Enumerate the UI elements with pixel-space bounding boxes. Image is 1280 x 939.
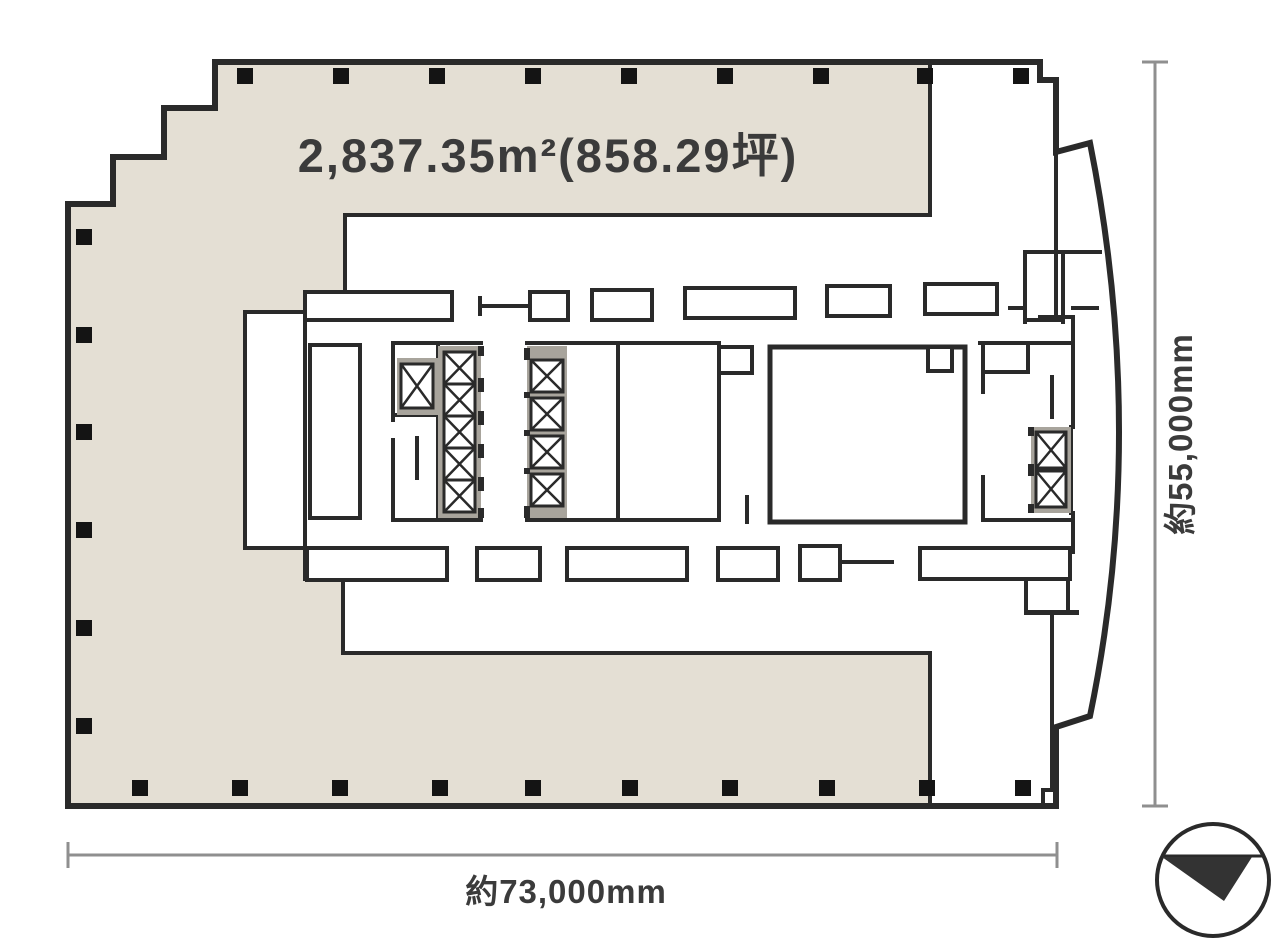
- service-room: [827, 286, 890, 316]
- left-annex-room: [245, 312, 305, 548]
- structural-column-marker: [76, 718, 92, 734]
- service-room: [477, 548, 540, 580]
- width-dimension: 約73,000mm: [68, 842, 1057, 910]
- structural-column-marker: [429, 68, 445, 84]
- structural-column-marker: [917, 68, 933, 84]
- structural-column-marker: [621, 68, 637, 84]
- machine-room: [618, 343, 719, 520]
- floor-plan-page: 2,837.35m²(858.29坪) 約73,000mm 約55,000mm: [0, 0, 1280, 939]
- floor-plan-drawing: 2,837.35m²(858.29坪) 約73,000mm 約55,000mm: [0, 0, 1280, 939]
- structural-column-marker: [76, 327, 92, 343]
- structural-column-marker: [333, 68, 349, 84]
- stair-shaft: [310, 345, 360, 518]
- width-dimension-line-group: [68, 842, 1057, 868]
- structural-column-marker: [819, 780, 835, 796]
- structural-column-marker: [813, 68, 829, 84]
- service-room: [530, 292, 568, 320]
- structural-column-marker: [232, 780, 248, 796]
- structural-column-marker: [132, 780, 148, 796]
- duct-closet: [719, 347, 752, 373]
- small-closet: [928, 347, 952, 371]
- structural-column-marker: [1013, 68, 1029, 84]
- structural-column-marker: [622, 780, 638, 796]
- service-room: [592, 290, 652, 320]
- structural-column-marker: [76, 522, 92, 538]
- service-room: [718, 548, 778, 580]
- structural-column-marker: [332, 780, 348, 796]
- structural-column-marker: [525, 68, 541, 84]
- structural-column-marker: [919, 780, 935, 796]
- service-room: [567, 548, 687, 580]
- structural-column-marker: [722, 780, 738, 796]
- structural-column-marker: [76, 620, 92, 636]
- height-dimension: 約55,000mm: [1142, 62, 1199, 806]
- height-dimension-label: 約55,000mm: [1162, 333, 1199, 535]
- service-room: [305, 292, 452, 320]
- structural-column-marker: [525, 780, 541, 796]
- north-arrow-compass-icon: [1157, 824, 1269, 936]
- service-room: [307, 548, 447, 580]
- area-label: 2,837.35m²(858.29坪): [298, 129, 798, 182]
- central-room: [770, 347, 965, 522]
- structural-column-marker: [76, 424, 92, 440]
- service-room: [685, 288, 795, 318]
- service-room: [800, 546, 840, 580]
- service-room: [920, 548, 1070, 579]
- structural-column-marker: [237, 68, 253, 84]
- left-annex: [245, 312, 305, 548]
- service-room: [925, 284, 997, 314]
- structural-column-marker: [432, 780, 448, 796]
- width-dimension-label: 約73,000mm: [465, 873, 667, 910]
- structural-column-marker: [1015, 780, 1031, 796]
- structural-column-marker: [717, 68, 733, 84]
- structural-column-marker: [76, 229, 92, 245]
